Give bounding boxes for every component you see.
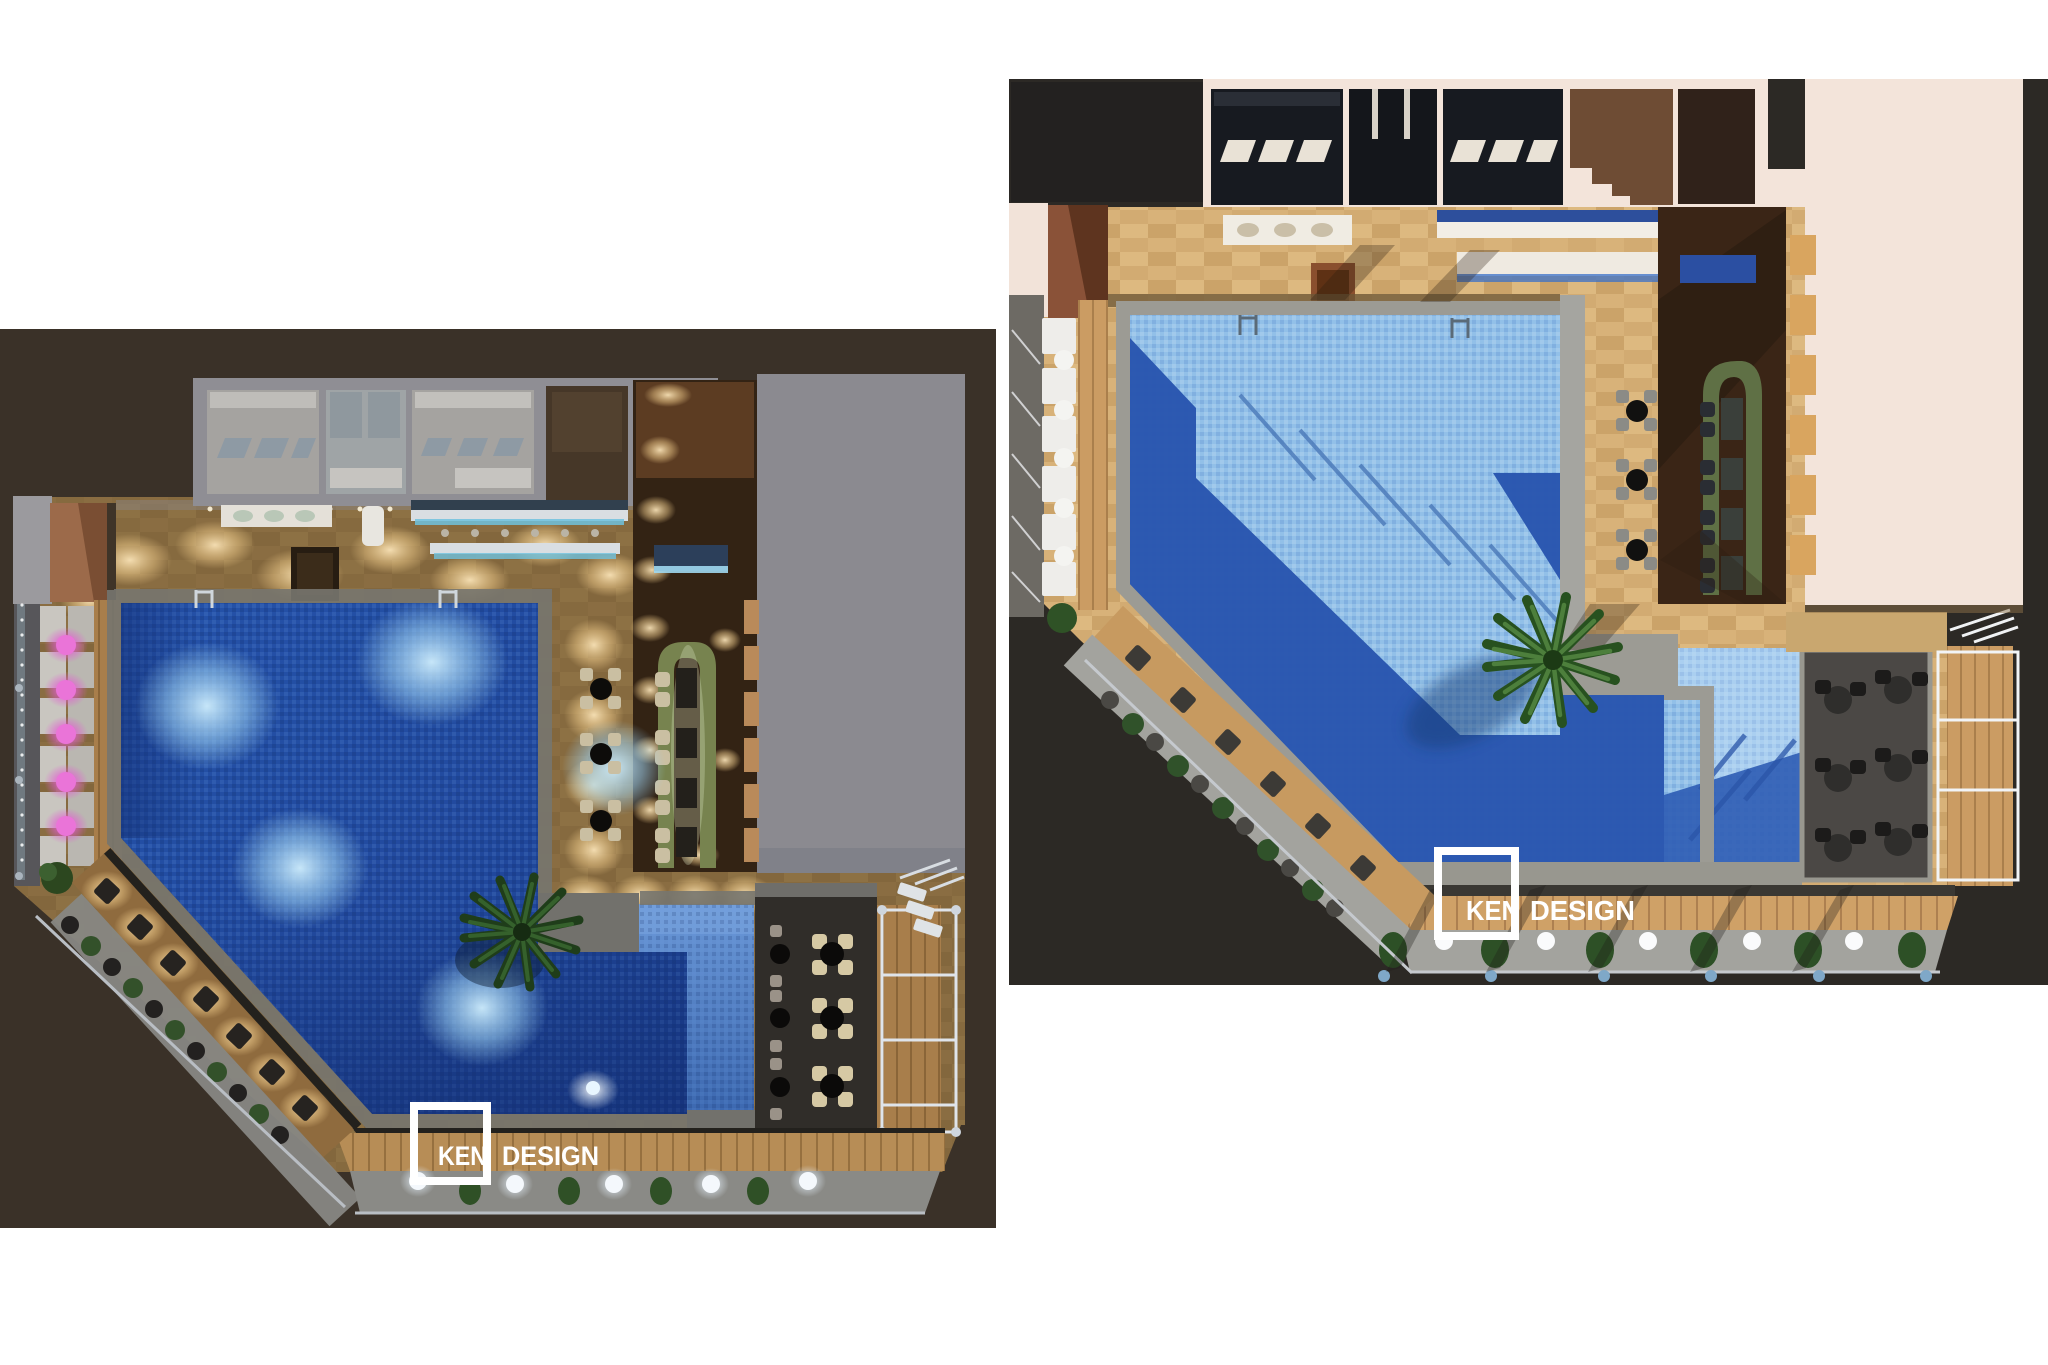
svg-text:DESIGN: DESIGN	[502, 1141, 599, 1171]
svg-text:DESIGN: DESIGN	[1530, 895, 1635, 926]
svg-text:KEN: KEN	[1466, 895, 1520, 926]
svg-text:KEN: KEN	[438, 1141, 487, 1171]
